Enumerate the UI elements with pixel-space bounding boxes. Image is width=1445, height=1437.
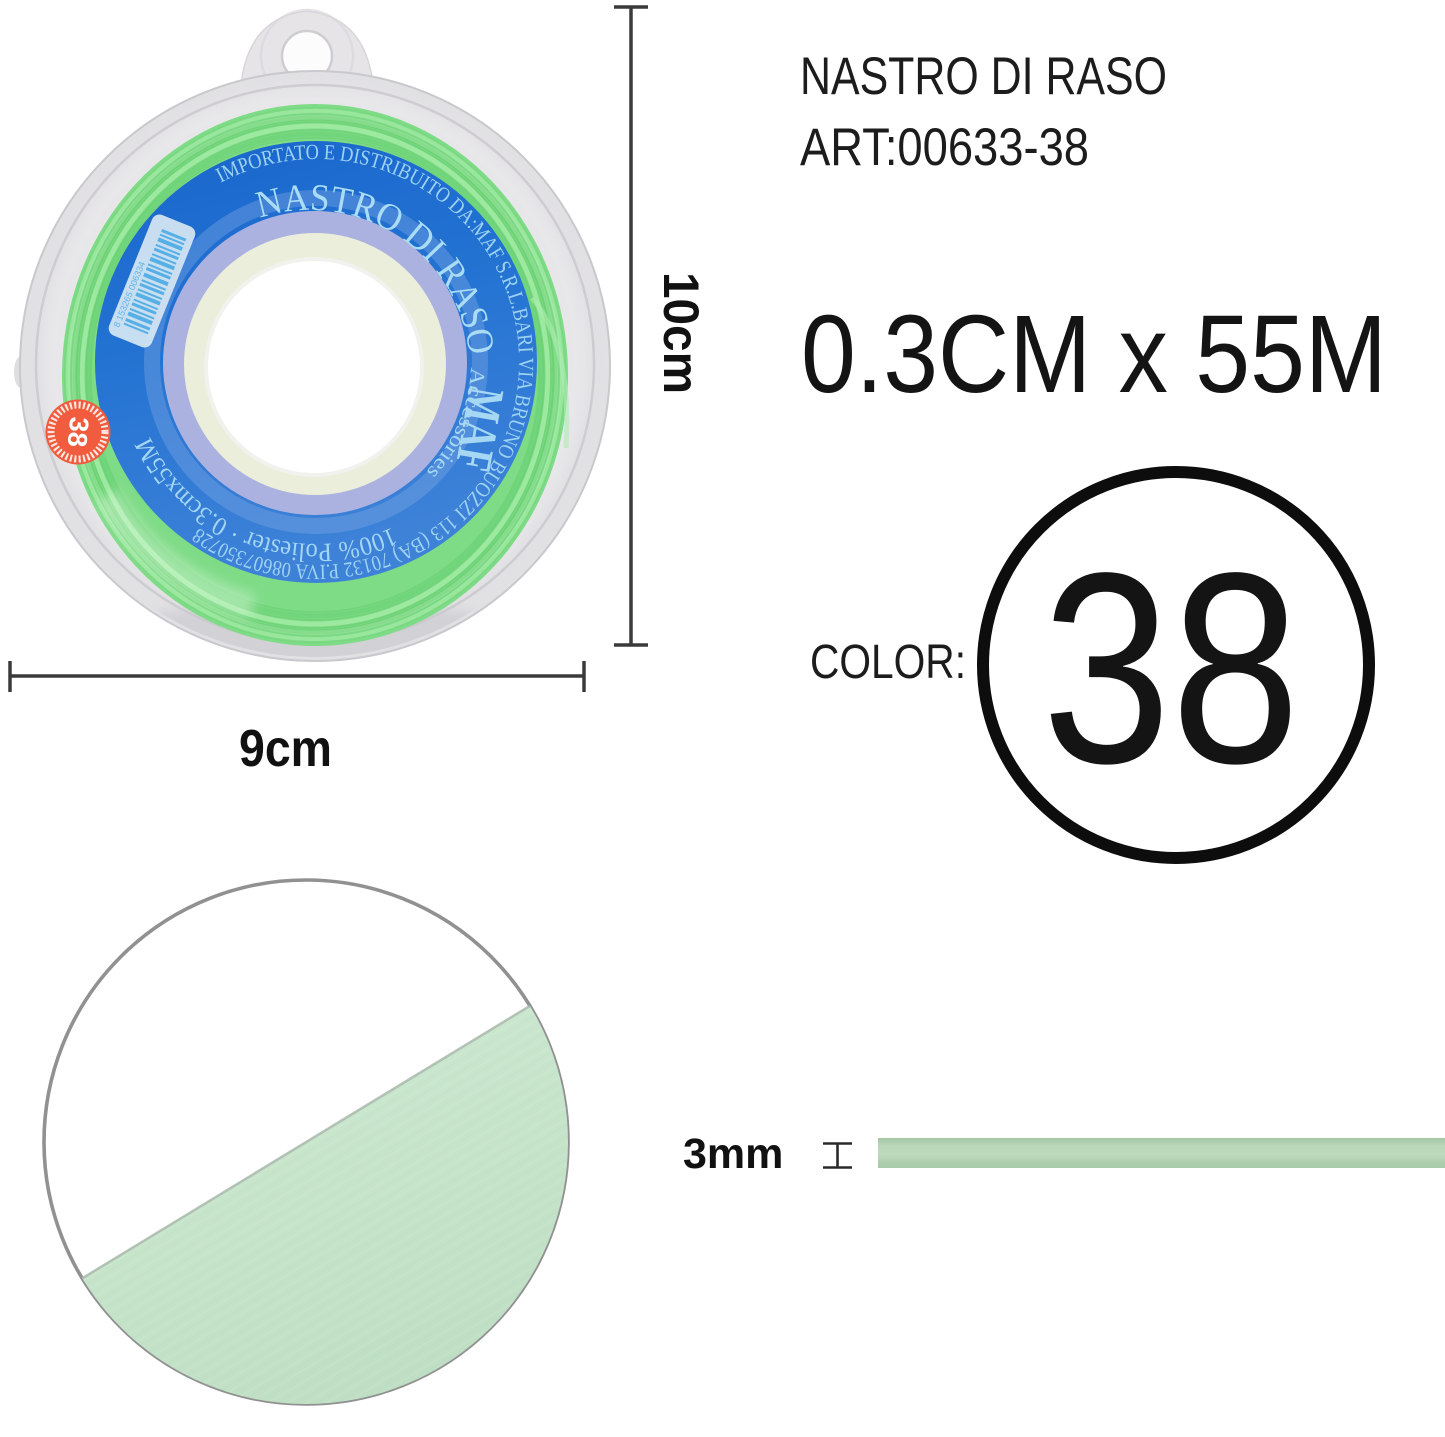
svg-text:0.3CM x 55M: 0.3CM x 55M <box>801 293 1387 416</box>
svg-text:ART:00633-38: ART:00633-38 <box>800 118 1089 177</box>
svg-text:38: 38 <box>1042 516 1300 820</box>
svg-text:10cm: 10cm <box>653 272 709 394</box>
svg-text:38: 38 <box>62 416 95 449</box>
svg-text:3mm: 3mm <box>683 1130 783 1178</box>
svg-text:COLOR:: COLOR: <box>810 636 966 689</box>
svg-text:NASTRO DI RASO: NASTRO DI RASO <box>800 47 1167 106</box>
svg-text:9cm: 9cm <box>239 720 332 778</box>
